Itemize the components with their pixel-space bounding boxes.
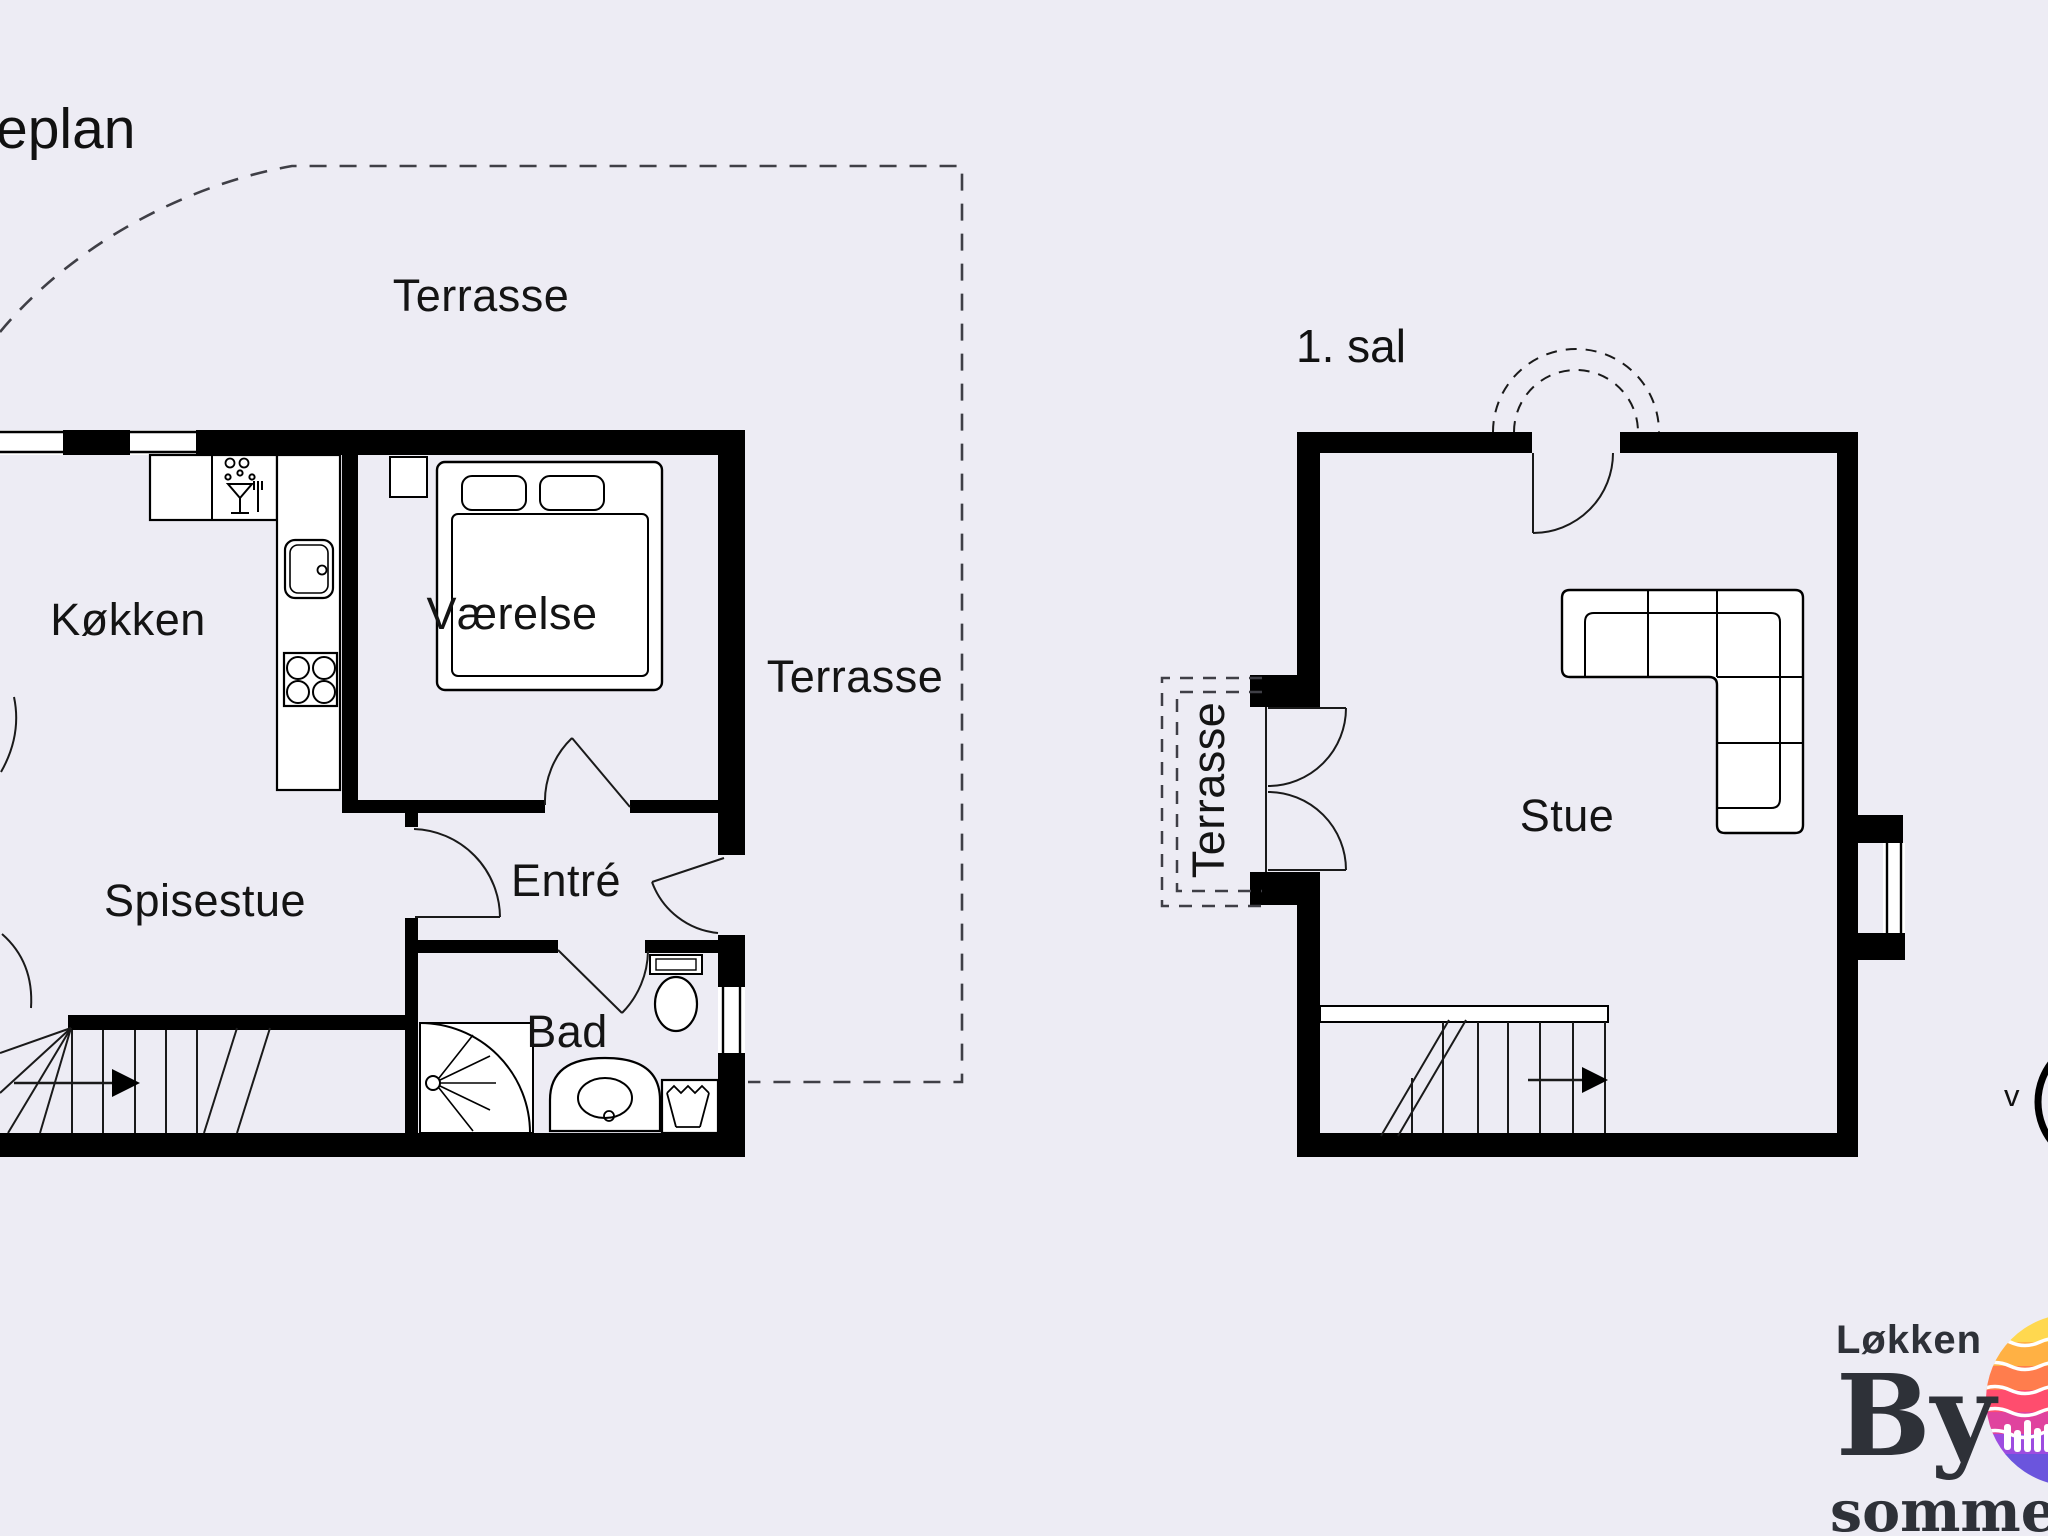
wall xyxy=(718,935,745,987)
toilet xyxy=(650,955,702,1031)
stair-break-line xyxy=(237,1028,270,1133)
label-kitchen: Køkken xyxy=(50,594,206,646)
stair-break-line xyxy=(204,1028,237,1133)
first-floor-plan xyxy=(1162,349,1905,1157)
wall xyxy=(418,940,558,953)
logo: Løkken By sommerh xyxy=(1836,1318,2048,1536)
shower-head-icon xyxy=(426,1076,440,1090)
door-left-edge-lower xyxy=(2,934,31,1008)
nightstand xyxy=(390,457,427,497)
wall xyxy=(196,430,745,455)
wall xyxy=(405,918,418,940)
logo-text-sommerh: sommerh xyxy=(1830,1478,2048,1536)
wall xyxy=(0,1133,745,1157)
label-bedroom: Værelse xyxy=(426,588,597,640)
stove xyxy=(284,653,337,706)
stair-break-line xyxy=(1381,1020,1449,1136)
wall xyxy=(1297,1133,1858,1157)
label-bathroom: Bad xyxy=(526,1006,608,1058)
laundry-sink xyxy=(662,1080,718,1133)
ground-floor-title-partial: eplan xyxy=(0,96,135,162)
first-floor-title: 1. sal xyxy=(1296,319,1406,373)
label-terrace-top: Terrasse xyxy=(393,270,570,322)
tap-knob-icon xyxy=(226,459,235,468)
wall xyxy=(1297,432,1532,453)
wall xyxy=(645,940,718,953)
wall xyxy=(1297,432,1320,675)
wall xyxy=(356,800,545,813)
floorplan-drawing xyxy=(0,0,2048,1536)
wall xyxy=(1858,815,1903,843)
wall xyxy=(405,813,418,827)
washbasin xyxy=(550,1058,660,1131)
wall xyxy=(405,940,418,1133)
door-entry-terrace xyxy=(652,858,724,933)
pillow xyxy=(462,476,526,510)
door-dining-entry xyxy=(414,829,500,917)
wall xyxy=(1620,432,1858,453)
door-entry-bath xyxy=(558,950,648,1013)
kitchen-sink xyxy=(285,540,333,598)
label-living-room: Stue xyxy=(1520,790,1615,842)
wall xyxy=(342,455,358,813)
tap-knob-icon xyxy=(240,459,249,468)
wall xyxy=(1858,933,1905,960)
wall xyxy=(68,1015,408,1030)
compass-west-label: v xyxy=(2004,1078,2020,1114)
wall xyxy=(63,430,130,455)
door-bedroom xyxy=(545,738,630,807)
french-doors-terrace xyxy=(1266,707,1346,872)
shower xyxy=(420,1023,533,1133)
wall xyxy=(1297,905,1320,1157)
door-left-edge-upper xyxy=(1,697,16,772)
pillow xyxy=(540,476,604,510)
staircase xyxy=(1320,1006,1608,1136)
label-terrace-right: Terrasse xyxy=(767,651,944,703)
label-dining-room: Spisestue xyxy=(104,875,306,927)
floorplan-page: eplan Terrasse Terrasse Køkken Værelse S… xyxy=(0,0,2048,1536)
label-entry: Entré xyxy=(511,855,621,907)
logo-text-by: By xyxy=(1836,1365,2048,1468)
wall xyxy=(1250,872,1320,905)
wall xyxy=(718,455,745,855)
label-terrace-first-floor: Terrasse xyxy=(1183,702,1235,879)
compass-circle xyxy=(2038,1038,2048,1166)
wall xyxy=(1837,432,1858,1133)
double-bed xyxy=(437,462,662,690)
stair-break-line xyxy=(1398,1020,1466,1136)
wall xyxy=(630,800,718,813)
